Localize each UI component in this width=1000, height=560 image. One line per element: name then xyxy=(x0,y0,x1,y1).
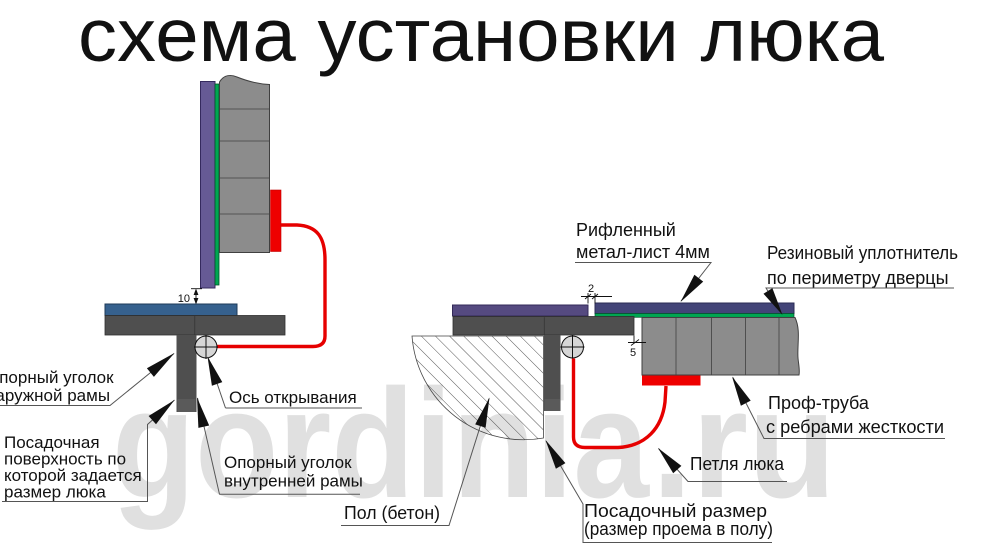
svg-text:с ребрами жесткости: с ребрами жесткости xyxy=(766,417,944,437)
svg-text:Рифленный: Рифленный xyxy=(576,220,676,240)
svg-text:10: 10 xyxy=(178,293,190,305)
svg-text:по периметру дверцы: по периметру дверцы xyxy=(767,268,949,288)
svg-text:Опорный уголок: Опорный уголок xyxy=(224,453,352,472)
svg-text:размер люка: размер люка xyxy=(4,483,106,502)
svg-text:схема установки люка: схема установки люка xyxy=(78,0,884,77)
svg-text:2: 2 xyxy=(588,283,594,295)
svg-text:Посадочный размер: Посадочный размер xyxy=(584,501,767,521)
svg-text:Пол (бетон): Пол (бетон) xyxy=(344,503,440,523)
svg-text:5: 5 xyxy=(630,347,636,359)
svg-text:наружной рамы: наружной рамы xyxy=(0,386,110,405)
svg-text:Проф-труба: Проф-труба xyxy=(768,393,870,413)
svg-text:внутренней рамы: внутренней рамы xyxy=(224,472,363,491)
svg-text:Ось открывания: Ось открывания xyxy=(229,388,357,407)
svg-text:Резиновый уплотнитель: Резиновый уплотнитель xyxy=(767,243,958,263)
svg-text:Петля люка: Петля люка xyxy=(690,454,785,474)
svg-text:метал-лист 4мм: метал-лист 4мм xyxy=(576,242,710,262)
svg-text:(размер проема в полу): (размер проема в полу) xyxy=(584,519,773,539)
svg-text:Опорный уголок: Опорный уголок xyxy=(0,368,114,387)
